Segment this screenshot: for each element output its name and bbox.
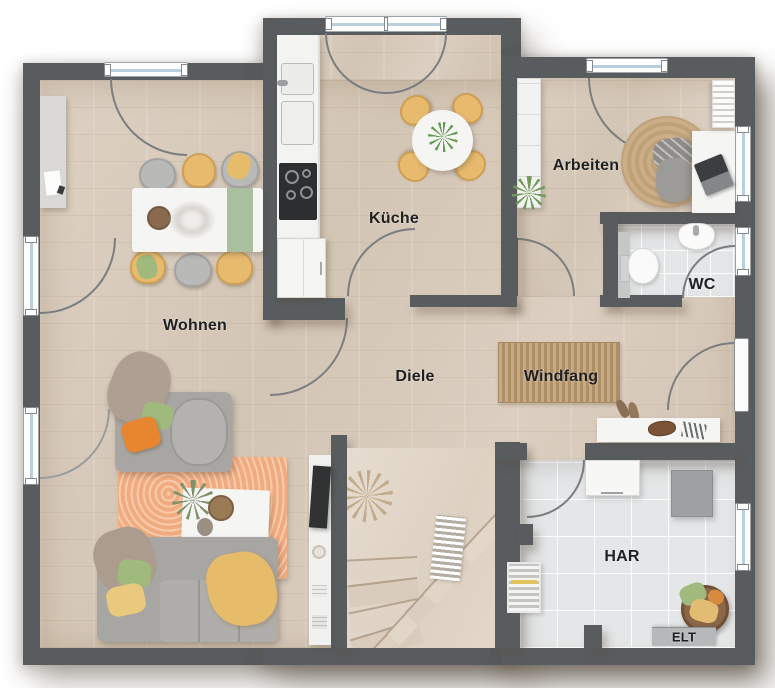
kitchen-table-plant [428, 122, 458, 152]
dining-chair [139, 158, 176, 191]
decor-bowl [312, 545, 326, 559]
room-label-diele: Diele [395, 368, 434, 386]
fridge-seam [303, 238, 304, 298]
vase [197, 518, 213, 536]
drying-rack-laundry [511, 580, 537, 584]
dried-grass-plant [347, 470, 393, 522]
floor-plan: Wohnen Küche Arbeiten WC Diele Windfang … [0, 0, 775, 688]
office-plant [512, 176, 546, 210]
basin-faucet [693, 225, 699, 236]
room-label-wc: WC [688, 276, 715, 294]
wall-tv [331, 435, 347, 648]
room-label-kueche: Küche [369, 210, 419, 228]
window-left-upper [23, 236, 39, 316]
washing-machine [585, 460, 640, 496]
wall-kitchen-left [263, 80, 277, 320]
kitchen-sink [281, 63, 314, 95]
bookshelf [712, 80, 735, 128]
office-chair-seat [656, 158, 693, 202]
wall-wc-left [603, 212, 618, 302]
table-runner [227, 188, 253, 252]
window-left-lower [23, 407, 39, 485]
wall-wc-bottom [600, 295, 682, 307]
burner [286, 190, 296, 200]
stair-step [458, 465, 495, 565]
wall-pier-har-left [518, 524, 533, 545]
faucet [277, 80, 288, 86]
window-right-har [735, 503, 751, 571]
centerpiece-flowers [168, 200, 216, 240]
burner [285, 170, 299, 184]
room-label-har: HAR [604, 548, 639, 566]
fridge [277, 238, 326, 298]
dryer-box [671, 470, 713, 517]
burner [302, 169, 311, 178]
window-right-arbeiten [735, 126, 751, 202]
book-stack [312, 615, 327, 629]
sofa-top-cushion [170, 398, 228, 466]
washing-machine-handle [601, 492, 623, 494]
wall-har-top [585, 443, 735, 460]
staircase [347, 448, 495, 648]
wall-pier-har-bottom [584, 625, 602, 648]
room-label-wohnen: Wohnen [163, 317, 227, 335]
wall-har-top-left-stub [495, 443, 527, 460]
room-label-windfang: Windfang [524, 368, 598, 386]
wooden-tray [208, 495, 234, 521]
window-kitchen-center-post [384, 17, 388, 31]
dining-chair [216, 250, 253, 285]
dining-chair [174, 253, 212, 287]
dining-chair [182, 153, 216, 188]
drying-rack [507, 562, 541, 613]
window-arbeiten-top [586, 58, 668, 73]
toilet-bowl [628, 248, 659, 284]
room-label-elt: ELT [672, 630, 696, 645]
wall-wc-top [600, 212, 735, 224]
room-label-arbeiten: Arbeiten [553, 157, 620, 175]
wall-har-left [495, 442, 520, 648]
kitchen-sink-drainer [281, 101, 314, 145]
fridge-handle [320, 262, 322, 275]
burner [300, 186, 313, 199]
entrance-door-leaf [734, 338, 749, 412]
wall-kitchen-bottom [263, 298, 345, 320]
window-wohnen-top [104, 62, 188, 77]
book-stack [312, 585, 327, 597]
keys-figurine [681, 421, 707, 439]
coffee-table-plant [172, 480, 214, 520]
window-right-wc [735, 227, 751, 276]
